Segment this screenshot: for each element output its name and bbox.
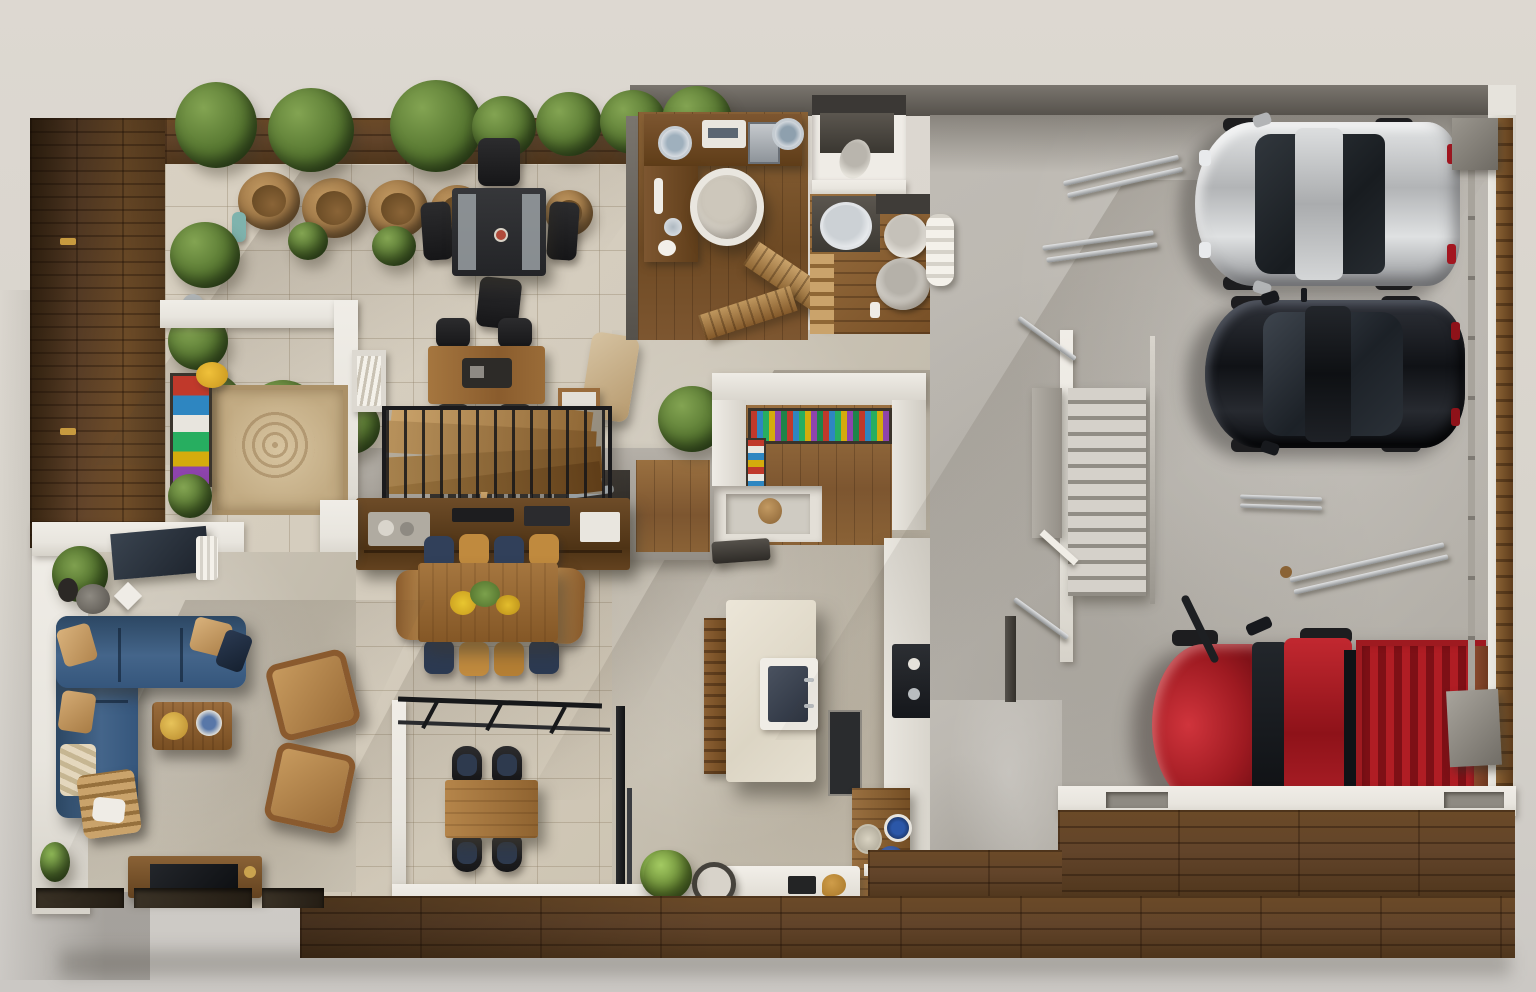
bath-shelf: [876, 194, 932, 214]
dark-tray: [788, 876, 816, 894]
dining-chair-navy: [529, 640, 559, 674]
table-runner: [522, 194, 540, 270]
headlight: [1199, 150, 1211, 166]
silver-sedan: [1195, 118, 1460, 290]
art-shelf: [170, 373, 212, 487]
top-wall-right-cap: [1488, 85, 1516, 117]
paper-rack: [352, 350, 386, 412]
wood-lounge-chair: [76, 768, 142, 839]
nook-corner-post: [616, 706, 625, 906]
rug-medallion: [235, 406, 315, 484]
toilet: [884, 214, 928, 258]
dining-chair-amber: [494, 642, 524, 676]
stair-handrail: [1150, 336, 1155, 604]
white-remote: [654, 178, 663, 214]
deck-shadow: [300, 896, 720, 958]
taillight: [1451, 322, 1460, 340]
headlight: [1199, 242, 1211, 258]
taillight: [1447, 244, 1456, 264]
garage-staircase: [1068, 388, 1146, 596]
speaker-dot: [244, 866, 256, 878]
pantry-dark-stool: [711, 538, 770, 564]
terracotta-pot: [238, 172, 300, 230]
centerpiece: [494, 228, 508, 242]
grill-side-board: [636, 460, 710, 552]
pantry-counter-left: [712, 400, 746, 486]
taillight: [1451, 408, 1460, 426]
deck-hinge-icon: [60, 428, 76, 435]
stair-side-wall: [1032, 388, 1062, 538]
rolled-towel: [926, 214, 954, 286]
wood-steps: [810, 252, 834, 334]
antenna-icon: [1301, 288, 1307, 302]
study-desk-top: [644, 114, 802, 166]
planter-bush: [175, 82, 257, 168]
dark-vase: [58, 578, 78, 602]
wc-upper-room: [812, 95, 906, 183]
wc-dark-wall: [812, 95, 906, 115]
outdoor-table: [452, 188, 546, 276]
dining-chair-amber: [529, 534, 559, 566]
wall-slot: [1444, 792, 1504, 808]
nook-chair: [452, 836, 482, 872]
entry-rug: [212, 385, 348, 515]
outdoor-chair: [420, 201, 454, 261]
console-device: [524, 506, 570, 526]
black-hatchback: [1205, 298, 1465, 450]
yellow-decor-disk: [196, 362, 228, 388]
outdoor-chair: [546, 201, 580, 261]
pantry-recess: [714, 486, 822, 542]
window-planter: [262, 888, 324, 908]
planter-bush: [536, 92, 602, 156]
study-left-wall: [626, 116, 638, 340]
bidet: [876, 258, 930, 310]
bath-lower-room: [810, 194, 934, 334]
wall-bracket: [1452, 118, 1498, 170]
garage-wall-rail: [1468, 140, 1475, 700]
dining-chair-navy: [424, 640, 454, 674]
stair-railing: [382, 406, 612, 504]
papers: [357, 356, 381, 406]
nook-left-wall: [392, 700, 406, 906]
console-device: [452, 508, 514, 522]
ceramic-plate: [772, 118, 804, 150]
console-box: [580, 512, 620, 542]
deck-hinge-icon: [60, 238, 76, 245]
wall-slot: [1106, 792, 1168, 808]
console-tray: [368, 512, 430, 546]
white-drape: [196, 536, 218, 580]
flower-bouquet-yellow: [496, 595, 520, 615]
lounge-cushion: [92, 796, 126, 823]
planter-bush: [268, 88, 354, 172]
nook-chair: [492, 836, 522, 872]
white-tray: [702, 120, 746, 148]
console-shelf-line: [364, 550, 622, 553]
game-chair: [436, 318, 470, 348]
planter-bush: [390, 80, 482, 172]
small-potted-plant: [288, 222, 328, 260]
ceramic-plate: [658, 126, 692, 160]
oval-sink: [820, 202, 872, 250]
game-table: [428, 346, 545, 404]
white-cup: [658, 240, 676, 256]
nook-chair: [452, 746, 482, 782]
bottle-rack: [748, 408, 892, 444]
car-roof: [1295, 128, 1343, 280]
coffee-table: [152, 702, 232, 750]
floor-plant-small: [40, 842, 70, 882]
wood-bowl: [758, 498, 782, 524]
truck-windshield: [1252, 642, 1288, 808]
tv-panel-leaning: [110, 526, 210, 580]
glass-cup: [664, 218, 682, 236]
floorplan-render: Top-down 3D architectural floor plan ren…: [0, 0, 1536, 992]
toiletry-bottle: [870, 302, 880, 318]
kitchen-island: [726, 600, 816, 782]
small-potted-plant: [372, 226, 416, 266]
truck-rear-window: [1344, 650, 1356, 800]
gold-tray: [160, 712, 188, 740]
egg-chair: [690, 168, 764, 246]
entry-top-wall: [160, 300, 356, 328]
pillow-tan: [57, 690, 96, 734]
truck-hood: [1152, 644, 1256, 806]
media-console: [356, 498, 630, 570]
outdoor-chair: [478, 138, 520, 186]
dark-post: [1005, 616, 1016, 702]
dining-chair-amber: [459, 642, 489, 676]
deck-kitchen-tongue: [868, 850, 1062, 902]
entry-shrub: [168, 474, 212, 518]
tv-screen: [150, 864, 238, 888]
window-planter: [134, 888, 252, 908]
table-tray: [462, 358, 512, 388]
kitchen-plant: [644, 850, 692, 900]
deck-upper-right: [1058, 810, 1515, 902]
rod-handle: [1280, 566, 1292, 578]
armchair-cognac: [263, 741, 358, 836]
blue-bowl: [884, 814, 912, 842]
left-deck-shadow: [30, 118, 166, 548]
nook-table: [445, 780, 538, 838]
cutting-board: [822, 874, 846, 896]
nook-glass-panel: [627, 788, 632, 892]
window-planter: [36, 888, 124, 908]
nook-chair: [492, 746, 522, 782]
round-tray-table: [76, 584, 110, 614]
dining-chair-amber: [459, 534, 489, 566]
game-chair: [498, 318, 532, 348]
car-roof: [1305, 306, 1351, 442]
dining-table: [418, 563, 558, 642]
blue-plate: [196, 710, 222, 736]
table-runner: [458, 194, 476, 270]
living-corner-wall: [320, 500, 358, 560]
planter-bush: [170, 222, 240, 288]
bath-divider-wall: [812, 180, 906, 194]
wall-bracket: [1446, 689, 1502, 768]
